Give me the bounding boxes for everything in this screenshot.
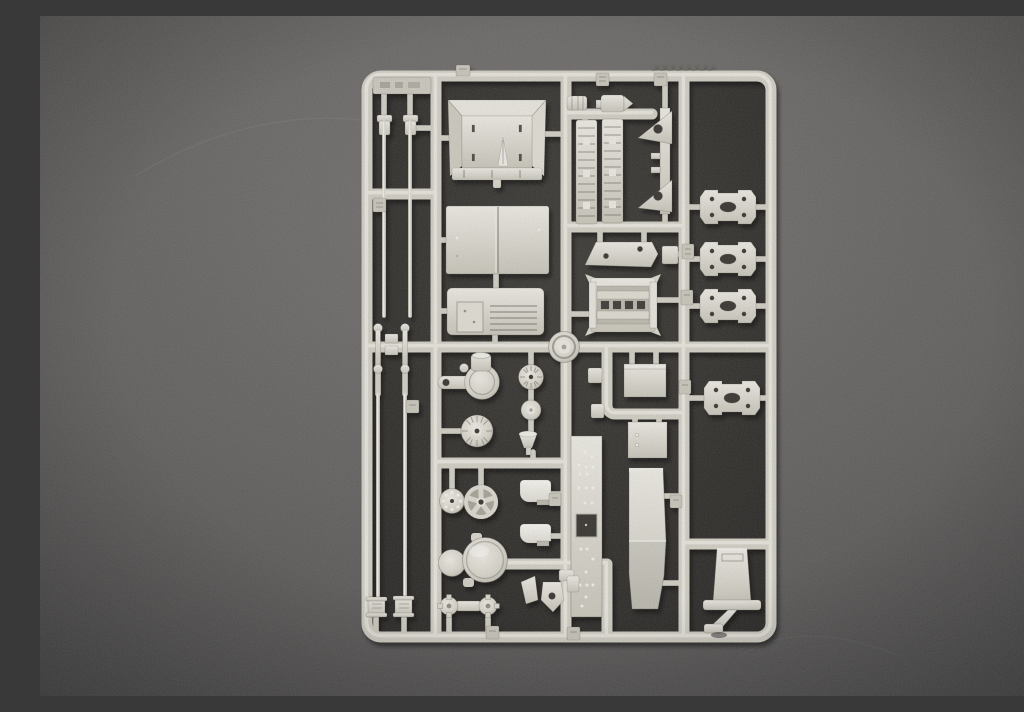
film-grain-dark (40, 16, 1024, 696)
sprue-photograph (40, 16, 1024, 696)
photo-canvas (40, 16, 1024, 696)
